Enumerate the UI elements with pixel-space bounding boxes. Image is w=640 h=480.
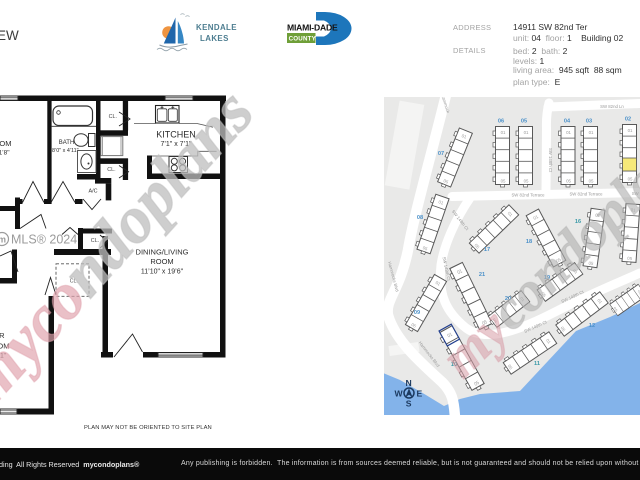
svg-text:SW 148th Ct: SW 148th Ct (548, 148, 553, 173)
svg-text:06: 06 (498, 119, 504, 125)
svg-text:N: N (405, 378, 411, 388)
svg-text:09: 09 (414, 310, 420, 316)
svg-text:02: 02 (625, 117, 631, 123)
svg-text:08: 08 (417, 215, 423, 221)
svg-text:11: 11 (534, 361, 540, 367)
svg-text:05: 05 (521, 119, 527, 125)
svg-text:03: 03 (586, 119, 592, 125)
svg-text:18: 18 (526, 239, 532, 245)
svg-text:21: 21 (479, 272, 485, 278)
svg-text:SW 82nd Ln: SW 82nd Ln (600, 104, 624, 109)
svg-text:12: 12 (589, 323, 595, 329)
svg-text:S: S (406, 399, 412, 409)
svg-text:04: 04 (564, 119, 571, 125)
svg-text:SW 82nd Terrace: SW 82nd Terrace (511, 193, 545, 198)
svg-text:07: 07 (438, 151, 444, 157)
svg-text:17: 17 (484, 247, 490, 253)
svg-text:E: E (417, 389, 423, 399)
svg-text:W: W (395, 389, 404, 399)
